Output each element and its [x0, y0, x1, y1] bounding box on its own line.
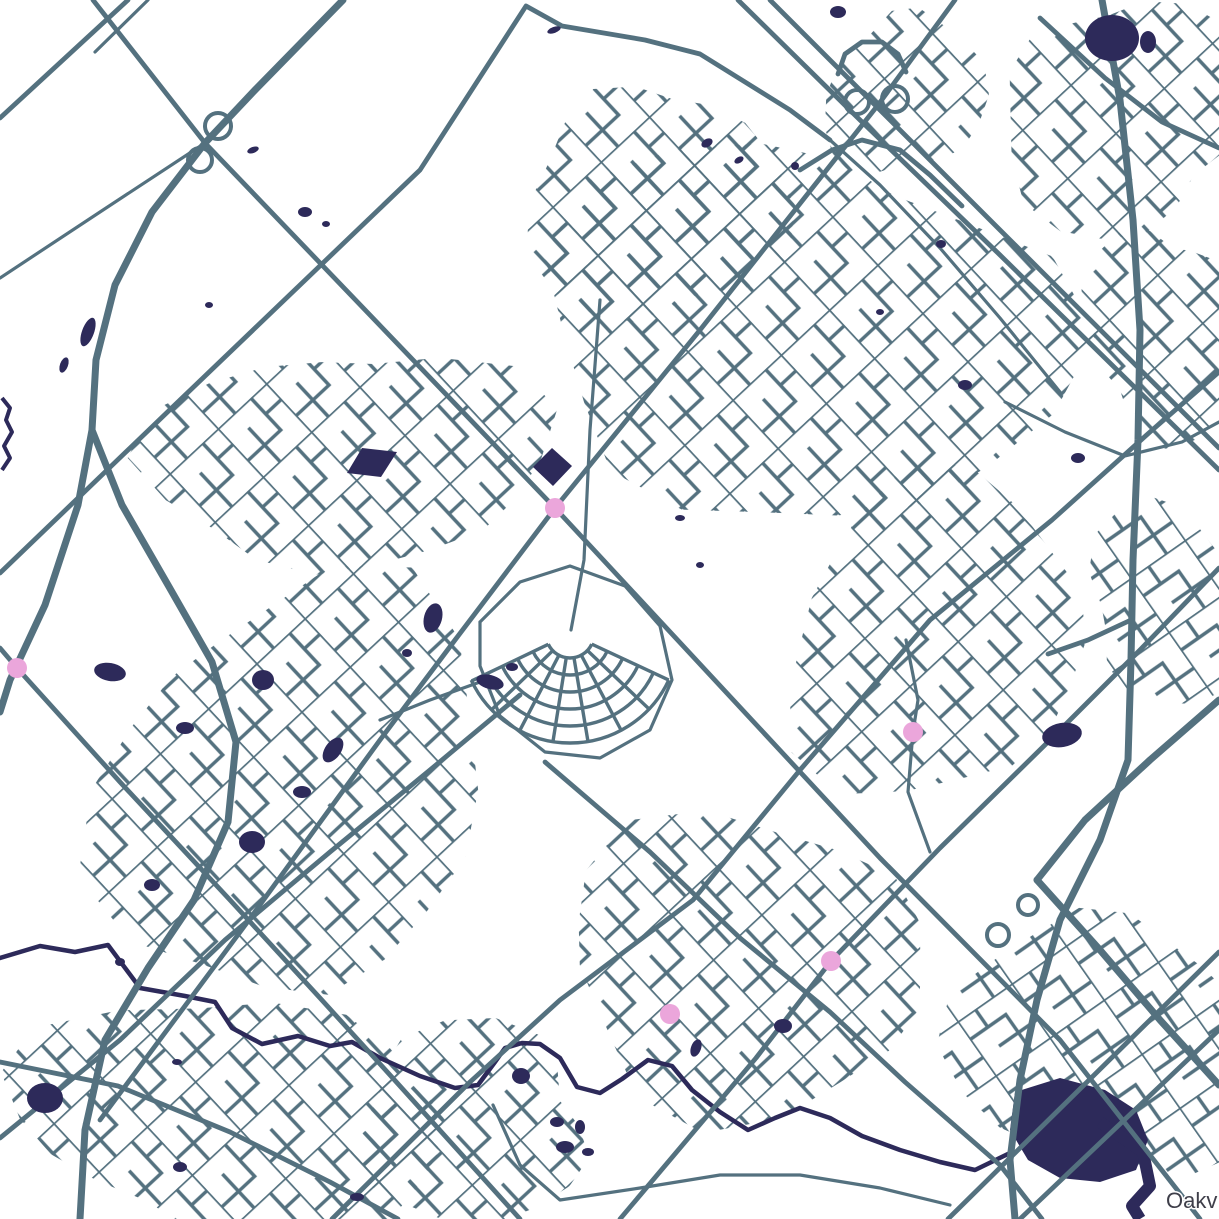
map-layers [0, 0, 1219, 1219]
pond [696, 562, 704, 568]
pond [239, 831, 265, 853]
pond [675, 515, 685, 521]
pond [350, 1193, 364, 1201]
pond [958, 380, 972, 390]
pond [550, 1117, 564, 1127]
pond [205, 302, 213, 308]
pond [144, 879, 160, 891]
poi-marker[interactable] [903, 722, 923, 742]
pond [512, 1068, 530, 1084]
pond [582, 1148, 594, 1156]
pond [575, 1120, 585, 1134]
poi-marker[interactable] [7, 658, 27, 678]
pond [298, 207, 312, 217]
pond [172, 1059, 182, 1065]
pond [1071, 453, 1085, 463]
pond [115, 958, 125, 966]
pond [791, 162, 799, 170]
pond [506, 663, 518, 671]
pond [830, 6, 846, 18]
pond [293, 786, 311, 798]
poi-marker[interactable] [821, 951, 841, 971]
pond [936, 240, 946, 248]
pond [322, 221, 330, 227]
poi-marker[interactable] [545, 498, 565, 518]
map-canvas[interactable]: Oakv [0, 0, 1219, 1219]
pond [774, 1019, 792, 1033]
map-viewport[interactable]: Oakv [0, 0, 1219, 1219]
pond [402, 649, 412, 657]
pond [176, 722, 194, 734]
pond [876, 309, 884, 315]
place-label-oakville: Oakv [1166, 1188, 1217, 1213]
pond [252, 670, 274, 690]
poi-marker[interactable] [660, 1004, 680, 1024]
pond [27, 1083, 63, 1113]
pond [1085, 15, 1139, 61]
pond [173, 1162, 187, 1172]
pond [1140, 31, 1156, 53]
pond [556, 1141, 574, 1153]
